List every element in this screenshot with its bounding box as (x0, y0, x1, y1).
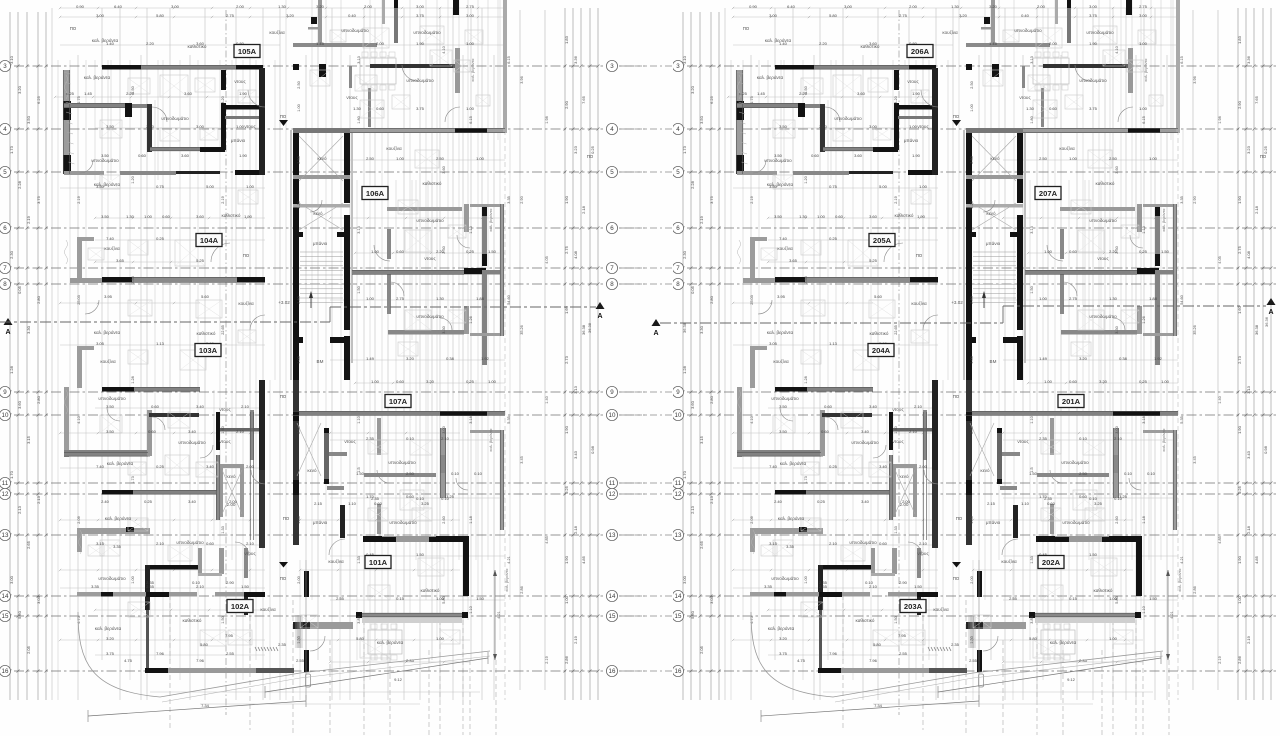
svg-text:A: A (1268, 309, 1273, 316)
svg-text:106A: 106A (366, 189, 385, 198)
svg-text:107A: 107A (389, 397, 408, 406)
svg-text:A: A (597, 313, 602, 320)
svg-text:205A: 205A (873, 236, 892, 245)
svg-text:105A: 105A (238, 47, 257, 56)
svg-text:A: A (653, 330, 658, 337)
svg-text:201A: 201A (1062, 397, 1081, 406)
svg-text:A: A (5, 329, 10, 336)
svg-text:36.38: 36.38 (587, 322, 592, 333)
svg-text:36.36: 36.36 (1264, 316, 1269, 327)
svg-text:204A: 204A (872, 346, 891, 355)
svg-text:104A: 104A (200, 236, 219, 245)
svg-text:206A: 206A (911, 47, 930, 56)
svg-text:36.38: 36.38 (682, 322, 687, 333)
svg-text:103A: 103A (199, 346, 218, 355)
svg-text:102A: 102A (231, 602, 250, 611)
svg-text:202A: 202A (1042, 558, 1061, 567)
svg-text:101A: 101A (369, 558, 388, 567)
svg-text:203A: 203A (904, 602, 923, 611)
svg-text:207A: 207A (1039, 189, 1058, 198)
